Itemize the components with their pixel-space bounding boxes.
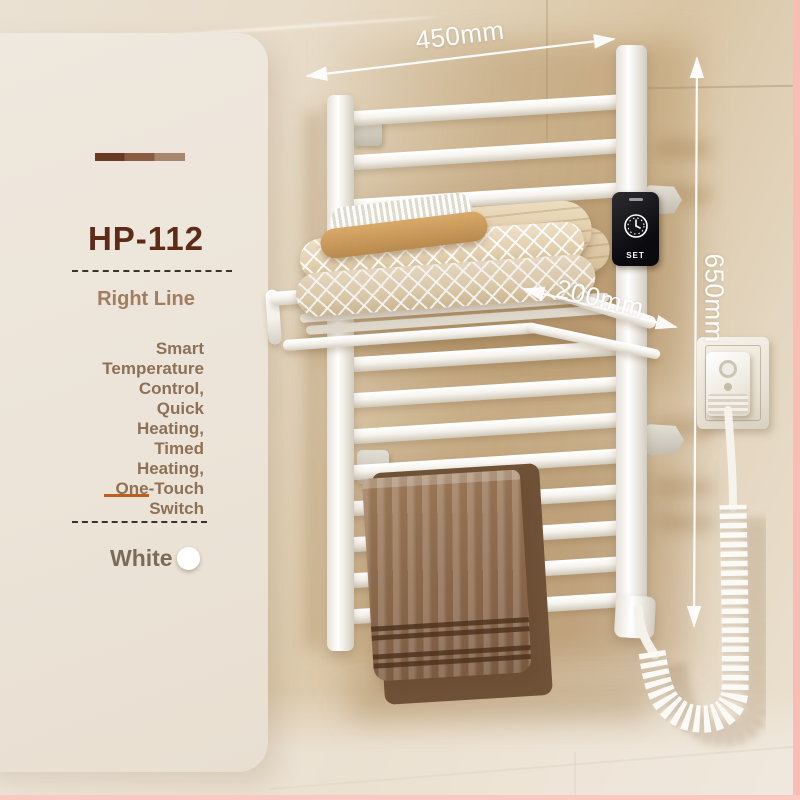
product-banner: HP-112 Right Line Smart Temperature Cont… xyxy=(0,0,800,800)
height-dimension-arrow xyxy=(694,58,697,626)
rack-cable xyxy=(638,608,655,655)
pink-edge-right xyxy=(793,0,800,800)
pink-edge-bottom xyxy=(0,795,800,800)
annotation-overlay xyxy=(0,0,800,800)
height-dimension-label: 650mm xyxy=(699,254,730,334)
plug-cable xyxy=(728,410,733,508)
